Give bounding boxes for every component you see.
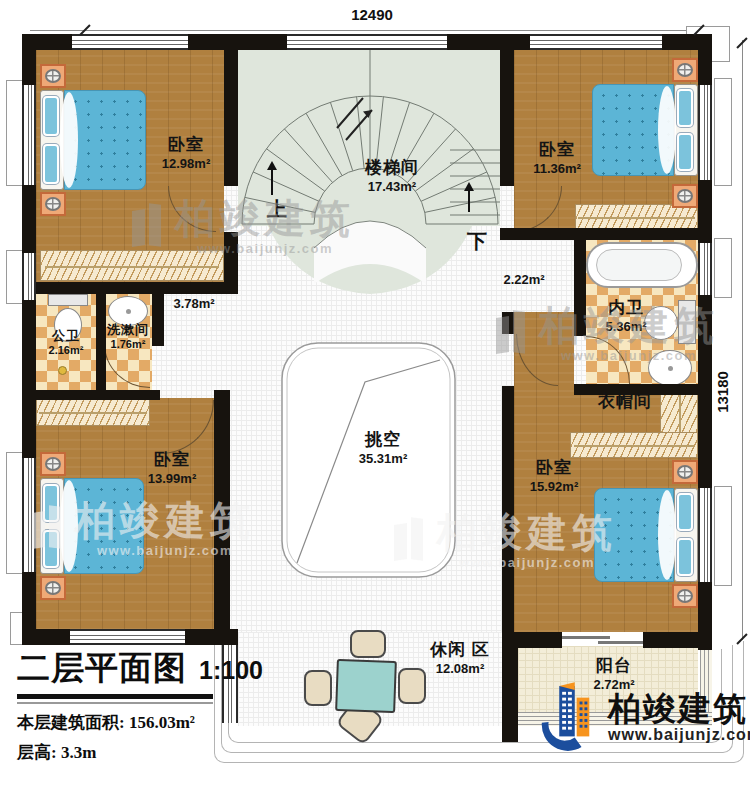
cloakroom-rack bbox=[570, 432, 698, 458]
room-label-leisure: 休闲 区 12.08m² bbox=[430, 640, 490, 677]
floor-area-label: 本层建筑面积: bbox=[17, 713, 125, 732]
toilet-bowl bbox=[644, 306, 678, 340]
blanket-fold bbox=[60, 480, 78, 572]
blanket-fold bbox=[658, 490, 676, 580]
plan-title: 二层平面图 bbox=[17, 649, 187, 686]
window bbox=[72, 34, 188, 50]
room-name: 卧室 bbox=[162, 135, 210, 156]
dimension-right: 13180 bbox=[714, 371, 731, 413]
chair bbox=[398, 668, 426, 704]
room-area: 13.99m² bbox=[148, 471, 196, 487]
bathtub bbox=[586, 242, 698, 288]
wall-segment bbox=[574, 240, 586, 336]
nightstand bbox=[672, 584, 698, 608]
room-label-void: 挑空 35.31m² bbox=[359, 430, 407, 467]
room-area: 15.92m² bbox=[530, 479, 578, 495]
room-area: 17.43m² bbox=[365, 179, 419, 195]
bathtub-basin bbox=[596, 249, 682, 281]
pillow bbox=[677, 493, 693, 531]
leisure-table bbox=[335, 659, 397, 713]
room-label-public-bath: 公卫 2.16m² bbox=[49, 328, 84, 357]
wall-segment bbox=[22, 390, 160, 400]
pillow bbox=[43, 96, 59, 136]
bed-top-left bbox=[40, 90, 146, 190]
bay-window-box bbox=[714, 238, 732, 298]
room-name: 楼梯间 bbox=[365, 158, 419, 179]
title-block: 二层平面图1:100 本层建筑面积: 156.03m² 层高: 3.3m bbox=[17, 646, 263, 764]
window bbox=[22, 253, 36, 300]
stairs-down-arrow bbox=[468, 186, 470, 212]
blanket-fold bbox=[60, 92, 78, 188]
title-underline bbox=[17, 694, 213, 699]
stairs-up-arrow bbox=[271, 165, 273, 195]
floor-plan-canvas: 12490 13180 bbox=[0, 0, 750, 792]
wall-segment bbox=[502, 312, 514, 334]
floor-area-value: 156.03m² bbox=[129, 713, 195, 732]
nightstand bbox=[40, 576, 66, 600]
wall-segment bbox=[518, 632, 562, 648]
wall-segment bbox=[643, 632, 712, 648]
sliding-door bbox=[598, 641, 646, 644]
room-name: 卧室 bbox=[148, 450, 196, 471]
floor-drain bbox=[58, 366, 67, 375]
cloakroom-rack bbox=[660, 390, 698, 434]
plan-scale: 1:100 bbox=[199, 656, 263, 684]
nightstand bbox=[672, 184, 698, 208]
wall-segment bbox=[224, 34, 238, 186]
room-label-hall-right: 2.22m² bbox=[503, 272, 544, 288]
bed-bottom-left bbox=[40, 478, 144, 574]
room-area: 5.36m² bbox=[605, 319, 646, 335]
dimension-top: 12490 bbox=[351, 6, 393, 23]
pillow bbox=[677, 89, 693, 127]
wall-segment bbox=[502, 632, 518, 742]
room-area: 12.08m² bbox=[430, 661, 490, 677]
room-name: 休闲 区 bbox=[430, 640, 490, 661]
wall-segment bbox=[22, 282, 238, 294]
nightstand bbox=[672, 460, 698, 484]
chair bbox=[304, 670, 332, 706]
floor-height-label: 层高: bbox=[17, 743, 57, 762]
room-area: 2.16m² bbox=[49, 344, 84, 357]
room-area: 11.36m² bbox=[533, 161, 581, 177]
room-label-washroom: 洗漱间 1.76m² bbox=[107, 322, 149, 351]
brand-name: 柏竣建筑 bbox=[608, 692, 750, 727]
window bbox=[698, 488, 712, 582]
wall-segment bbox=[222, 629, 238, 645]
window bbox=[70, 629, 185, 645]
pillow bbox=[677, 538, 693, 576]
room-name: 公卫 bbox=[49, 328, 84, 344]
sliding-door bbox=[562, 636, 610, 639]
toilet-tank bbox=[48, 294, 88, 306]
wall-segment bbox=[96, 294, 106, 390]
wall-segment bbox=[152, 294, 164, 346]
window bbox=[698, 243, 712, 295]
wall-segment bbox=[214, 390, 230, 630]
room-label-bedroom-bottom-left: 卧室 13.99m² bbox=[148, 450, 196, 487]
room-label-bedroom-top-right: 卧室 11.36m² bbox=[533, 140, 581, 177]
window bbox=[530, 34, 662, 50]
room-name: 衣帽间 bbox=[598, 392, 652, 413]
room-name: 洗漱间 bbox=[107, 322, 149, 338]
toilet-tank bbox=[678, 300, 696, 344]
bed-bottom-right bbox=[594, 488, 698, 582]
room-name: 卧室 bbox=[530, 458, 578, 479]
nightstand bbox=[40, 64, 66, 88]
stairs-up-label: 上 bbox=[267, 196, 287, 223]
title-underline-thin bbox=[17, 702, 213, 704]
chair bbox=[350, 630, 386, 658]
wardrobe bbox=[40, 250, 224, 281]
brand-site: www.baijunjz.com bbox=[608, 726, 750, 744]
wardrobe bbox=[36, 398, 150, 426]
bed-top-right bbox=[592, 84, 698, 176]
room-area: 12.98m² bbox=[162, 156, 210, 172]
nightstand bbox=[672, 58, 698, 82]
nightstand bbox=[40, 452, 66, 476]
pillow bbox=[677, 133, 693, 171]
wall-segment bbox=[500, 34, 514, 186]
stairs-down-label: 下 bbox=[467, 228, 487, 255]
window bbox=[22, 458, 36, 572]
wall-segment bbox=[502, 386, 514, 632]
floor-height-value: 3.3m bbox=[61, 743, 96, 762]
room-name: 内卫 bbox=[605, 298, 646, 319]
brand-logo: 柏竣建筑 www.baijunjz.com bbox=[536, 682, 750, 754]
brand-logo-icon bbox=[536, 682, 598, 754]
room-label-bedroom-bottom-right: 卧室 15.92m² bbox=[530, 458, 578, 495]
bay-window-box bbox=[714, 78, 732, 186]
pillow bbox=[43, 144, 59, 184]
wall-segment bbox=[500, 228, 712, 240]
inner-bath-sink bbox=[648, 350, 692, 386]
room-name: 卧室 bbox=[533, 140, 581, 161]
window bbox=[698, 85, 712, 180]
room-label-cloakroom: 衣帽间 bbox=[598, 392, 652, 413]
room-label-bedroom-top-left: 卧室 12.98m² bbox=[162, 135, 210, 172]
room-label-inner-bath: 内卫 5.36m² bbox=[605, 298, 646, 335]
blanket-fold bbox=[658, 86, 676, 174]
dimension-right-line bbox=[742, 40, 743, 640]
room-area: 2.22m² bbox=[503, 272, 544, 288]
room-area: 1.76m² bbox=[107, 338, 149, 351]
pillow bbox=[43, 530, 59, 568]
window bbox=[22, 85, 36, 185]
dimension-top-line bbox=[30, 30, 718, 31]
bay-window-box bbox=[714, 486, 732, 586]
room-area: 3.78m² bbox=[173, 296, 214, 312]
window bbox=[287, 34, 447, 50]
room-area: 35.31m² bbox=[359, 451, 407, 467]
room-name: 阳台 bbox=[593, 656, 634, 677]
room-name: 挑空 bbox=[359, 430, 407, 451]
room-label-stairwell: 楼梯间 17.43m² bbox=[365, 158, 419, 195]
pillow bbox=[43, 484, 59, 522]
room-label-hall-left: 3.78m² bbox=[173, 296, 214, 312]
nightstand bbox=[40, 192, 66, 216]
